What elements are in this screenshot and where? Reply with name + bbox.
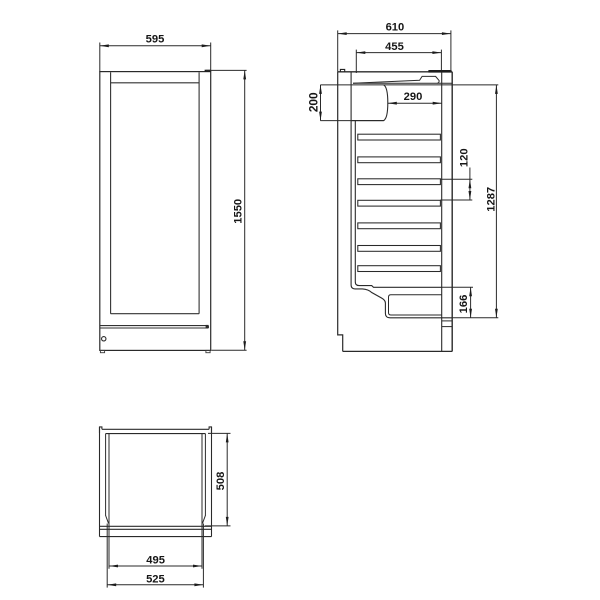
svg-text:290: 290: [404, 91, 423, 103]
svg-text:1550: 1550: [233, 199, 245, 224]
svg-text:595: 595: [146, 34, 165, 46]
svg-text:1287: 1287: [486, 187, 498, 212]
svg-text:120: 120: [459, 148, 471, 167]
svg-text:495: 495: [146, 555, 165, 567]
svg-text:508: 508: [215, 472, 227, 491]
svg-text:610: 610: [386, 22, 405, 34]
svg-text:200: 200: [306, 92, 320, 112]
svg-text:455: 455: [385, 41, 404, 53]
svg-text:525: 525: [146, 574, 165, 586]
svg-text:166: 166: [458, 295, 470, 314]
